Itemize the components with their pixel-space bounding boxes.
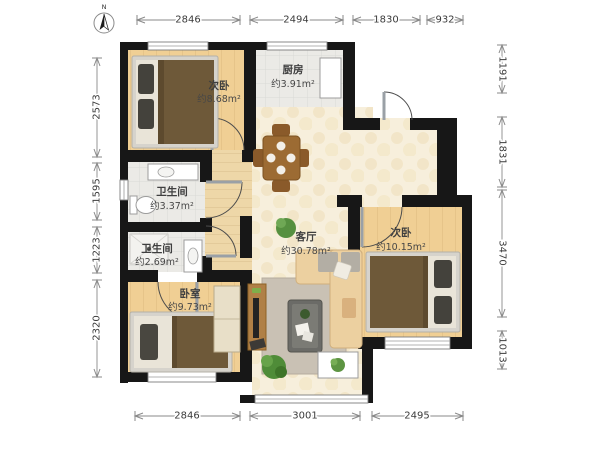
dimension-label: 1830: [373, 15, 398, 26]
dimension-label: 3001: [292, 411, 317, 422]
dimension-label: 932: [435, 15, 454, 26]
window: [385, 337, 450, 349]
room-area: 约9.73m²: [168, 301, 212, 313]
side-table-icon: [318, 352, 358, 378]
dimension-label: 2846: [175, 15, 200, 26]
room-name: 厨房: [283, 63, 304, 76]
window: [148, 42, 208, 50]
room-name: 客厅: [295, 230, 317, 243]
window: [267, 42, 327, 50]
dimension-label: 2320: [92, 315, 103, 340]
room-area: 约3.91m²: [271, 78, 315, 90]
dimension-label: 1191: [497, 56, 508, 81]
dimensions-bottom: 2846 3001 2495: [135, 411, 463, 422]
floor-plan-canvas: N 2846 2494 1830 932 2846 3001 2495 2573…: [0, 0, 600, 450]
fridge-icon: [320, 58, 341, 98]
floor-plan: N 2846 2494 1830 932 2846 3001 2495 2573…: [0, 0, 600, 450]
compass-icon: N: [94, 3, 114, 33]
window: [120, 180, 128, 200]
room-area: 约8.68m²: [197, 93, 241, 105]
compass-north-label: N: [102, 3, 107, 11]
dimensions-top: 2846 2494 1830 932: [137, 15, 463, 26]
dimension-label: 1831: [497, 139, 508, 164]
room-name: 次卧: [209, 79, 230, 92]
plant-icon: [276, 218, 296, 238]
room-area: 约2.69m²: [135, 256, 179, 268]
dimension-label: 1223: [92, 237, 103, 262]
dimension-label: 2495: [404, 411, 429, 422]
dimension-label: 2846: [174, 411, 199, 422]
room-area: 约3.37m²: [150, 200, 194, 212]
room-name: 卫生间: [156, 185, 188, 198]
door-arc: [384, 92, 412, 120]
bed-icon: [366, 252, 460, 332]
window: [255, 395, 368, 403]
room-area: 约30.78m²: [281, 245, 331, 257]
dimension-label: 2494: [283, 15, 308, 26]
sink-icon: [148, 164, 198, 180]
wardrobe-icon: [214, 286, 240, 352]
coffee-table-icon: [288, 300, 322, 352]
dimension-label: 1595: [92, 178, 103, 203]
window: [148, 372, 216, 382]
dimension-label: 3470: [497, 240, 508, 265]
dimensions-right: 1191 1831 3470 1013: [497, 45, 508, 369]
room-area: 约10.15m²: [376, 241, 426, 253]
room-name: 卧室: [180, 287, 201, 300]
room-name: 卫生间: [141, 242, 173, 255]
tv-console-icon: [248, 284, 266, 351]
room-name: 次卧: [391, 226, 412, 239]
dimensions-left: 2573 1595 1223 2320: [92, 58, 103, 377]
sink-icon: [184, 240, 202, 272]
dimension-label: 2573: [92, 94, 103, 119]
dimension-label: 1013: [497, 337, 508, 362]
